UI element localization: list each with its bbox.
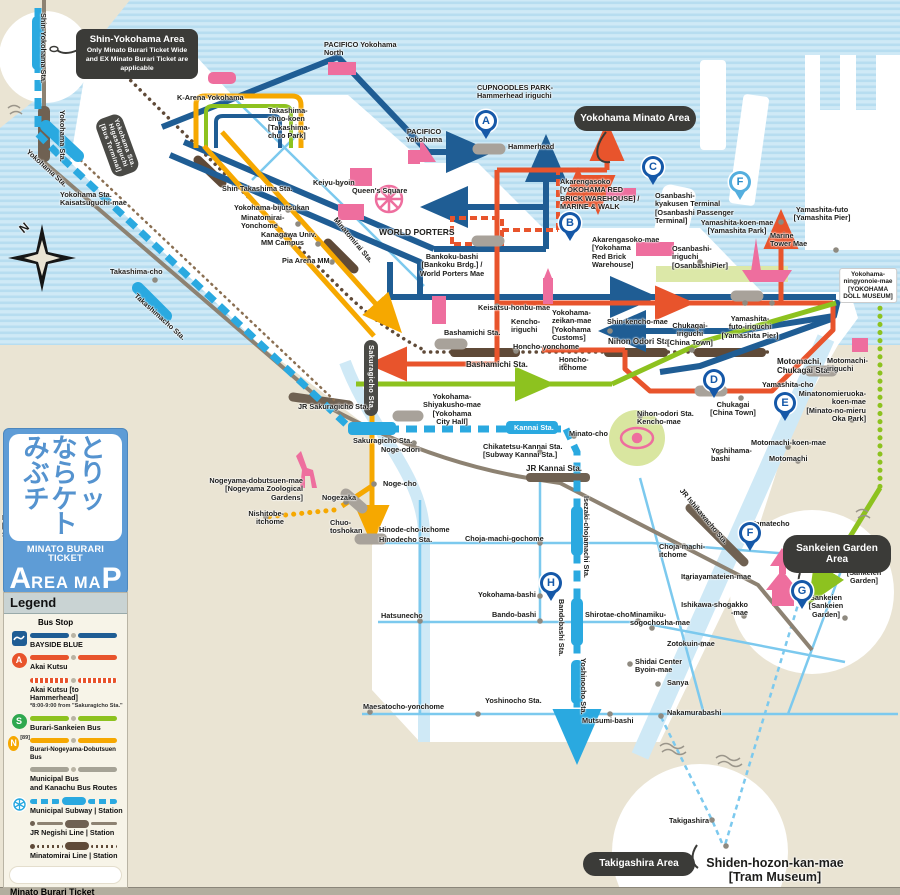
pin-letter: B [562,215,578,231]
station-label: Nishitobe- itchome [248,510,284,527]
station-label: Noge-cho [383,480,417,488]
bayside-blue-logo-icon [12,631,27,646]
area-map-title-last: P [102,565,122,592]
station-label: Yamashita-koen-mae [Yamashita Park] [701,219,774,236]
route-badge-A: A [12,653,27,668]
legend-line-sample [30,714,117,723]
station-label: JR Sakuragicho Sta. [298,403,369,411]
legend-entry-label: BAYSIDE BLUE [30,641,125,650]
yokohama-city-logo-icon [12,797,27,812]
station-label: WORLD PORTERS [379,228,455,238]
station-label: Yokohama Sta. Kaisatsuguchi-mae [60,191,127,208]
legend-entry: Minatomirai Line | Station [8,841,125,861]
station-label: Nogezaka [322,494,356,502]
station-label: Nakamurabashi [667,709,721,717]
shin-yokohama-callout: Shin-Yokohama Area Only Minato Burari Ti… [76,29,198,79]
station-label: Sanya [667,679,689,687]
map-pin-g-7: G [791,580,813,602]
station-label: Bankoku-bashi [Bankoku Brdg.] / World Po… [420,253,484,278]
station-label: Honcho-yonchome [513,343,579,351]
map-footer-strip [0,887,900,895]
station-label: Chukagai- iriguchi [China Town] [667,322,713,347]
station-label: PACIFICO Yokohama [406,128,442,145]
station-label: Nogeyama-dobutsuen-mae [Nogeyama Zoologi… [209,477,303,502]
designated-area-swatch [10,867,121,883]
map-pin-e-4: E [774,392,796,414]
station-label: Osanbashi- iriguchi [OsanbashiPier] [672,245,728,270]
legend-entry-note: *8:00-9:00 from "Sakuragicho Sta." [30,703,125,710]
minato-burari-area-map: Shin-Yokohama Area Only Minato Burari Ti… [0,0,900,895]
station-label: Yokohama Sta. [58,110,66,162]
legend-entry: JR Negishi Line | Station [8,818,125,838]
callout-body: Only Minato Burari Ticket Wide and EX Mi… [82,47,192,73]
pin-letter: F [742,525,758,541]
pin-letter: D [706,372,722,388]
station-label: Yokohama-bijutsukan [234,204,309,212]
pin-letter: F [732,174,748,190]
station-label: Akarengasoko-mae [Yokohama Red Brick War… [592,236,659,270]
station-label: Motomachi [769,455,808,463]
pin-letter: E [777,395,793,411]
area-label: Yokohama Minato Area [574,106,696,131]
station-label: Shidai Center Byoin-mae [635,658,682,675]
station-label: Noge-odori [381,446,420,454]
station-label: Yokohama- ningyonoie-mae [YOKOHAMA DOLL … [839,268,897,303]
station-label: Shin Takashima Sta. [222,185,292,193]
station-label: Hammerhead [508,143,554,151]
station-label: Yokohama- zeikan-mae [Yokohama Customs] [552,309,591,343]
legend-line-sample [30,819,117,828]
map-pin-f-5: F [729,171,751,193]
legend-panel: Legend Bus Stop BAYSIDE BLUE A Akai Kuts… [3,592,128,888]
legend-line-sample [30,765,117,774]
station-label: Yokohama-bashi [478,591,536,599]
station-label: Mutsumi-bashi [582,717,633,725]
station-label: Yokohama- Shiyakusho-mae [Yokohama City … [423,393,481,427]
legend-header: Legend [4,593,127,614]
map-pin-d-3: D [703,369,725,391]
station-label: Hinode-cho-itchome [379,526,450,534]
station-label: Nihon-odori Sta. Kencho-mae [637,410,694,427]
legend-entry: S Burari-Sankeien Bus [8,713,125,733]
route-badge-N: N [8,736,19,751]
station-label: Chikatetsu-Kannai Sta. [Subway Kannai St… [483,443,562,460]
legend-entry: N[89] Burari-Nogeyama-Dobutsuen Bus [8,735,125,761]
station-label: Yamashita-futo [Yamashita Pier] [794,206,851,223]
pin-letter: A [478,113,494,129]
station-label: Hinodecho Sta. [379,536,432,544]
route-badge-S: S [12,714,27,729]
station-label: Hatsunecho [381,612,423,620]
pin-letter: C [645,159,661,175]
station-label: Choja-machi- itchome [659,543,705,560]
station-label: Shirotae-cho [585,611,630,619]
legend-entry-label: Municipal Subway | Station [30,807,125,816]
legend-bus-stop-label: Bus Stop [38,619,127,627]
legend-designated-area: Minato Burari Ticket designated area ※No… [10,867,121,895]
station-label: Ishikawa-shogakko -mae [681,601,748,618]
station-label: CUPNOODLES PARK- Hammerhead iriguchi [477,84,553,101]
legend-entry-label: JR Negishi Line | Station [30,829,125,838]
callout-title: Shin-Yokohama Area [82,34,192,45]
legend-entry-label: Akai Kutsu [to Hammerhead] [30,686,125,703]
station-label: Minatonomieruoka- koen-mae [Minato-no-mi… [799,390,866,424]
jp-line-3: チケット [11,488,120,539]
area-map-title: A REA MA P [9,565,122,592]
station-label: Kanagawa Univ. MM Campus [261,231,316,248]
legend-line-sample [30,653,117,662]
station-label: Minatomirai- Yonchome [241,214,284,231]
station-label: Chuo- toshokan [330,519,362,536]
station-label: Takashima-cho [110,268,163,276]
station-label: Keisatsu-honbu-mae [478,304,550,312]
station-label: Choja-machi-gochome [465,535,544,543]
station-label: Bashamichi Sta. [466,360,528,369]
station-label: Nihon Odori Sta. [608,337,671,346]
pin-letter: G [794,583,810,599]
map-pin-a-0: A [475,110,497,132]
legend-rows: BAYSIDE BLUE A Akai Kutsu Akai Kutsu [to… [4,630,127,861]
station-label: Yoshinocho Sta. [579,658,587,715]
legend-entry-label: Akai Kutsu [30,663,125,672]
station-label: Marine Tower Mae [770,232,807,249]
legend-line-sample [30,842,117,851]
station-label: Motomachi- iriguchi [827,357,868,374]
station-label: PACIFICO Yokohama North [324,41,397,58]
station-label: Bashamichi Sta. [444,329,500,337]
legend-entry: Municipal Subway | Station [8,796,125,816]
ticket-japanese-logo: みなと ぶらり チケット [9,434,122,541]
legend-line-sample [30,676,117,685]
station-label: K-Arena Yokohama [177,94,244,102]
station-label: Yoshihama- bashi [711,447,752,464]
station-label: Sankeien [Sankeien Garden] [809,594,843,619]
station-label: Keiyu-byoin [313,179,355,187]
pin-letter: H [543,575,559,591]
designated-area-label: Minato Burari Ticket designated area [10,887,121,895]
legend-entry-label: Burari-Nogeyama-Dobutsuen Bus [30,746,125,761]
station-label: JR Kannai Sta. [526,464,582,473]
legend-line-sample [30,736,117,745]
station-label: Bando-bashi [492,611,536,619]
station-label: Zotokuin-mae [667,640,715,648]
area-map-title-mid: REA MA [31,575,101,592]
map-pin-c-2: C [642,156,664,178]
legend-entry: A Akai Kutsu [8,652,125,672]
station-label: Motomachi, Chukagai Sta. [777,357,830,375]
legend-line-sample [30,631,117,640]
area-label: Sankeien Garden Area [783,535,891,573]
legend-line-sample [30,797,117,806]
station-label: Takigashira [669,817,709,825]
map-pin-f-6: F [739,522,761,544]
station-label: Motomachi-koen-mae [751,439,826,447]
station-label: Yoshinocho Sta. [485,697,542,705]
map-pin-h-8: H [540,572,562,594]
legend-entry-label: Burari-Sankeien Bus [30,724,125,733]
legend-entry: Municipal Bus and Kanachu Bus Routes [8,764,125,792]
ticket-english-name: MINATO BURARI TICKET [9,545,122,564]
station-label: Yamashita- futo-iriguchi [Yamashita Pier… [722,315,779,340]
station-label: Kencho- iriguchi [511,318,540,335]
legend-entry-label: Municipal Bus and Kanachu Bus Routes [30,775,125,792]
area-map-title-first: A [9,565,31,592]
legend-entry: BAYSIDE BLUE [8,630,125,650]
station-label: Akarengasoko [YOKOHAMA RED BRICK WAREHOU… [560,178,639,212]
route-map-graphics [0,0,900,895]
station-label: Bandobashi Sta. [557,599,565,656]
station-label: Kannai Sta. [514,424,554,432]
area-label: Takigashira Area [583,852,695,876]
station-label: Takashima- chuo-koen [Takashima- chuo Pa… [268,107,310,141]
station-label: Shin-kencho-mae [607,318,668,326]
station-label: Isezaki-chojamachi Sta. [582,496,590,578]
station-label: Shiden-hozon-kan-mae [Tram Museum] [706,856,844,885]
ticket-title-block: みなと ぶらり チケット MINATO BURARI TICKET A REA … [3,428,128,595]
station-label: Minato-cho [569,430,608,438]
station-label: Queen's Square [352,187,407,195]
station-label: Pia Arena MM [282,257,330,265]
station-label: Shin-Yokohama Sta. [39,13,47,83]
station-label: Honcho- itchome [559,356,589,373]
station-label: Maesatocho-yonchome [363,703,444,711]
legend-entry-label: Minatomirai Line | Station [30,852,125,861]
legend-entry: Akai Kutsu [to Hammerhead] *8:00-9:00 fr… [8,675,125,710]
map-pin-b-1: B [559,212,581,234]
station-label: Itariayamateien-mae [681,573,751,581]
